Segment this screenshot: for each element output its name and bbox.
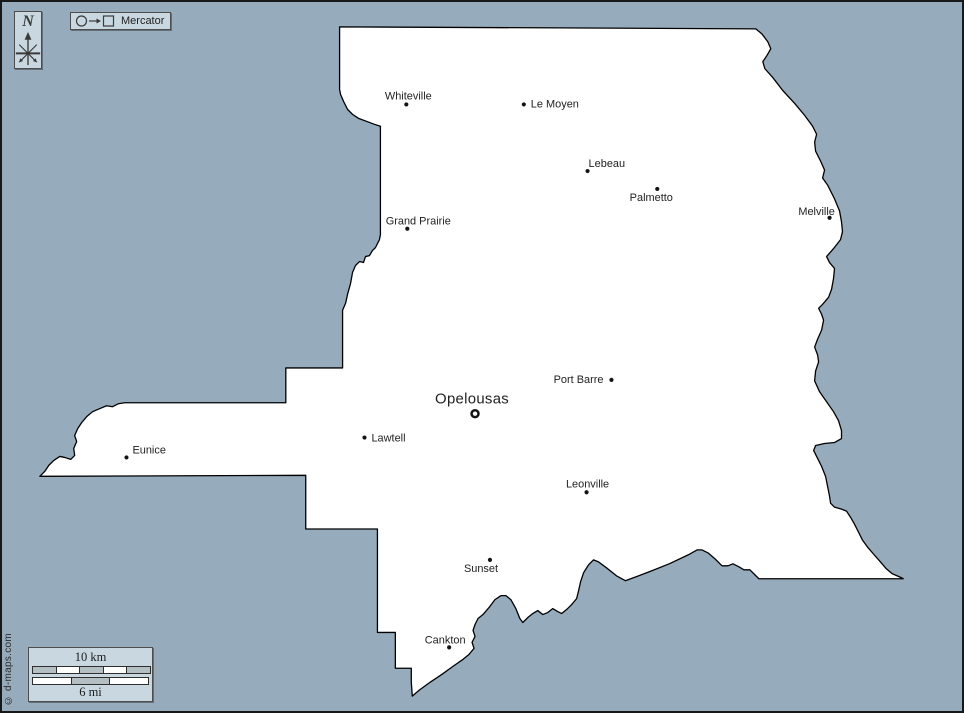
scale-bar: 10 km 6 mi xyxy=(28,647,153,702)
city-marker-lawtell xyxy=(362,435,366,439)
scale-mi-label: 6 mi xyxy=(29,685,152,700)
map-canvas: WhitevilleLe MoyenLebeauPalmettoMelville… xyxy=(0,0,964,713)
city-label-sunset: Sunset xyxy=(464,563,498,575)
city-label-lebeau: Lebeau xyxy=(589,158,626,170)
city-label-cankton: Cankton xyxy=(425,634,466,646)
scale-segment xyxy=(126,667,150,673)
city-label-eunice: Eunice xyxy=(132,444,165,456)
scale-segment xyxy=(103,667,127,673)
city-label-opelousas: Opelousas xyxy=(435,391,509,408)
city-label-leonville: Leonville xyxy=(566,478,609,490)
city-label-le-moyen: Le Moyen xyxy=(531,98,579,110)
city-marker-whiteville xyxy=(404,102,408,106)
projection-indicator: Mercator xyxy=(70,12,171,30)
scale-mi-bar xyxy=(32,677,149,685)
compass-arrow-icon xyxy=(14,31,42,68)
parish-outline xyxy=(40,27,903,696)
city-label-whiteville: Whiteville xyxy=(385,90,432,102)
city-marker-port-barre xyxy=(609,378,613,382)
city-label-lawtell: Lawtell xyxy=(371,433,405,445)
credit-watermark: © d-maps.com xyxy=(3,633,14,705)
compass-north-label: N xyxy=(22,13,34,31)
city-marker-eunice xyxy=(124,455,128,459)
projection-transform-icon xyxy=(75,14,117,28)
city-label-palmetto: Palmetto xyxy=(630,192,673,204)
scale-segment xyxy=(71,678,110,684)
city-label-melville: Melville xyxy=(798,206,834,218)
city-marker-sunset xyxy=(488,558,492,562)
city-marker-leonville xyxy=(584,490,588,494)
city-label-port-barre: Port Barre xyxy=(554,374,604,386)
city-marker-opelousas xyxy=(472,410,479,417)
scale-segment xyxy=(33,678,71,684)
city-marker-le-moyen xyxy=(522,102,526,106)
scale-segment xyxy=(79,667,103,673)
projection-label: Mercator xyxy=(121,15,164,27)
compass-rose: N xyxy=(14,11,42,69)
city-label-grand-prairie: Grand Prairie xyxy=(386,216,451,228)
city-marker-palmetto xyxy=(655,187,659,191)
map-svg: WhitevilleLe MoyenLebeauPalmettoMelville… xyxy=(2,2,962,711)
scale-segment xyxy=(33,667,56,673)
scale-segment xyxy=(56,667,80,673)
scale-segment xyxy=(109,678,148,684)
scale-km-label: 10 km xyxy=(29,650,152,665)
scale-km-bar xyxy=(32,666,151,674)
